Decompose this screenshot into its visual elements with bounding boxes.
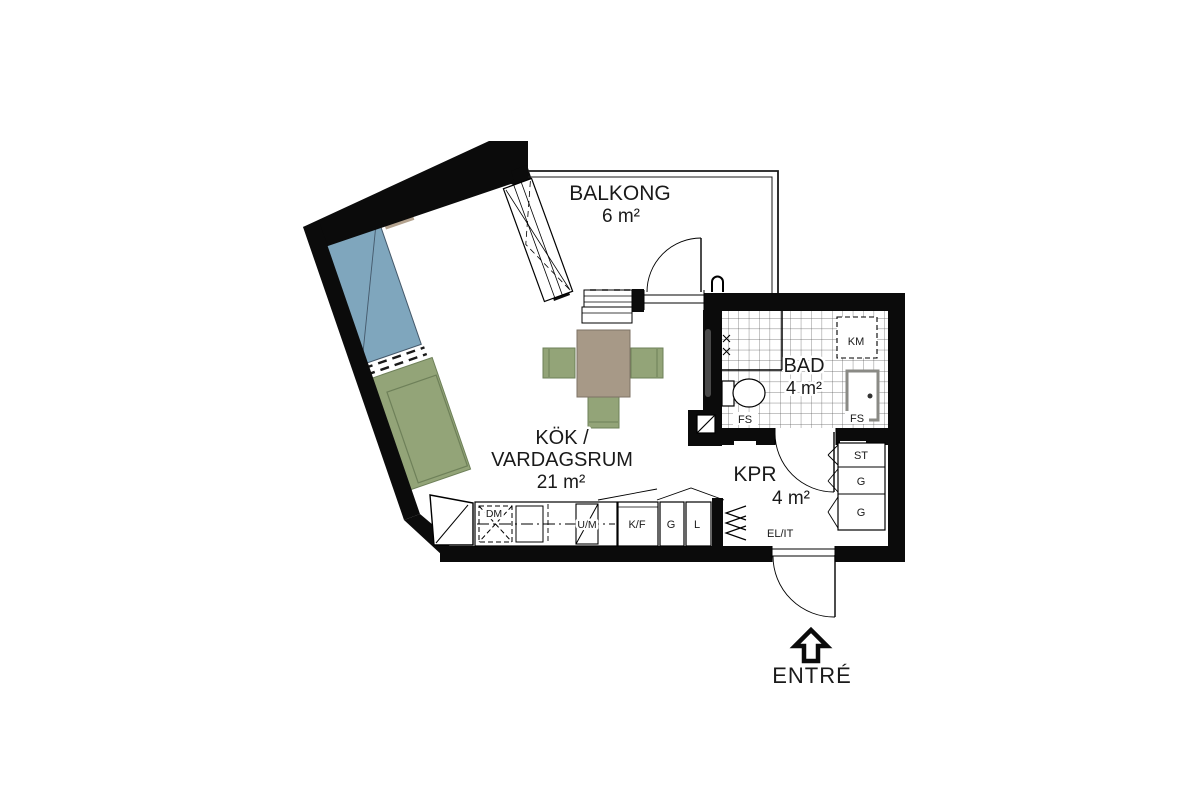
balcony-door — [644, 238, 704, 310]
entry-arrow-icon — [795, 630, 827, 661]
entrance-label: ENTRÉ — [772, 663, 852, 688]
wall-top-left — [303, 141, 528, 248]
balcony-door-opening — [644, 290, 704, 310]
chair-right — [631, 348, 663, 378]
floor-plan-page: BALKONG 6 m² KÖK / VARDAGSRUM 21 m² BAD … — [0, 0, 1200, 800]
wall-kitchen-pillar — [712, 498, 723, 546]
bathroom-door — [775, 428, 836, 492]
wall-right — [888, 293, 905, 562]
faucet-icon — [868, 394, 873, 399]
bath-wall-hatch-left — [734, 441, 756, 449]
radiator — [705, 329, 711, 397]
toilet-icon — [722, 379, 765, 407]
window-sill-bench — [582, 307, 632, 323]
kpr-area: 4 m² — [772, 488, 810, 509]
bathroom-door-opening — [775, 428, 836, 445]
floor-plan-drawing: BALKONG 6 m² KÖK / VARDAGSRUM 21 m² BAD … — [0, 0, 1200, 800]
linen-cabinet-label: L — [694, 519, 700, 531]
dining-set — [543, 330, 663, 428]
wall-bath-top — [703, 293, 905, 311]
living-room-label-line1: KÖK / — [535, 427, 589, 449]
living-room-window — [582, 290, 632, 323]
washing-machine-label: KM — [848, 336, 865, 348]
fs-right-label: FS — [850, 413, 864, 425]
entry-door-swing — [773, 556, 835, 617]
closet-door-marks — [828, 445, 838, 528]
entry-door — [772, 546, 835, 617]
dining-table — [577, 330, 630, 397]
wall-window-mullion — [632, 289, 644, 312]
chair-left — [543, 348, 575, 378]
dishwasher-label: DM — [486, 508, 502, 520]
closet-g2-label: G — [857, 507, 866, 519]
chair-bottom — [588, 396, 619, 428]
electrical-panel-label: EL/IT — [767, 528, 794, 540]
living-room-label-line2: VARDAGSRUM — [491, 449, 633, 471]
angled-window — [503, 178, 572, 301]
balcony-label: BALKONG — [569, 182, 671, 205]
closet-st-label: ST — [854, 450, 868, 462]
wall-bottom-main — [440, 546, 772, 562]
overhead-cabinet-lines — [598, 488, 724, 500]
closet-g1-label: G — [857, 476, 866, 488]
fridge-freezer-label: K/F — [628, 519, 645, 531]
oven-microwave-label: U/M — [577, 519, 596, 531]
balcony-drainpipe-icon — [712, 277, 723, 293]
bath-area: 4 m² — [786, 378, 822, 398]
wardrobe-kitchen-label: G — [667, 519, 676, 531]
fs-left-label: FS — [738, 414, 752, 426]
shaft-symbol — [697, 415, 715, 433]
living-room-area: 21 m² — [537, 472, 586, 493]
electrical-panel-icon — [726, 506, 746, 540]
kpr-label: KPR — [733, 463, 776, 486]
entry-door-opening — [772, 546, 835, 562]
bath-label: BAD — [783, 355, 824, 377]
corner-cabinet — [430, 495, 473, 545]
balcony-door-swing — [647, 238, 701, 292]
balcony-area: 6 m² — [602, 206, 640, 227]
